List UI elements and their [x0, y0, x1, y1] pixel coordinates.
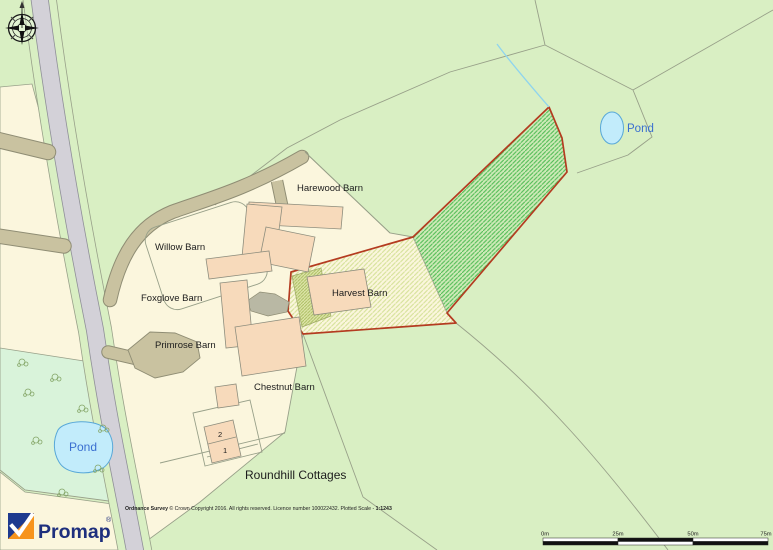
copyright-bold: Ordnance Survey	[125, 506, 168, 512]
label-pond-northeast: Pond	[627, 123, 654, 135]
label-cottage-1: 1	[223, 446, 227, 455]
scale-label-0m: 0m	[541, 532, 549, 538]
small-outbuilding	[215, 384, 239, 408]
chestnut-barn-building	[235, 317, 306, 376]
copyright-body: © Crown Copyright 2016. All rights reser…	[169, 505, 375, 512]
label-cottage-2: 2	[218, 430, 222, 439]
scale-segment	[618, 542, 693, 546]
label-pond-southwest: Pond	[69, 440, 97, 454]
plotted-scale-value: 1:1243	[376, 506, 392, 512]
scale-segment	[618, 538, 693, 542]
pond-northeast	[601, 112, 624, 144]
label-primrose-barn: Primrose Barn	[155, 340, 216, 351]
scale-label-75m: 75m	[760, 532, 771, 538]
scale-segment	[693, 542, 768, 546]
label-roundhill-cottages: Roundhill Cottages	[245, 468, 346, 482]
scale-segment	[543, 542, 618, 546]
label-harewood-barn: Harewood Barn	[297, 183, 363, 194]
label-harvest-barn: Harvest Barn	[332, 288, 387, 299]
label-willow-barn: Willow Barn	[155, 242, 205, 253]
promap-brand-text: Promap	[38, 521, 111, 543]
scale-segment	[543, 538, 618, 542]
label-chestnut-barn: Chestnut Barn	[254, 382, 315, 393]
promap-registered-mark: ®	[106, 516, 112, 524]
promap-map-view[interactable]: Harewood Barn Willow Barn Foxglove Barn …	[0, 0, 773, 550]
scale-label-25m: 25m	[612, 532, 623, 538]
copyright-text: Ordnance Survey © Crown Copyright 2016. …	[125, 505, 392, 512]
label-foxglove-barn: Foxglove Barn	[141, 293, 202, 304]
map-canvas[interactable]: Harewood Barn Willow Barn Foxglove Barn …	[0, 0, 773, 550]
scale-segment	[693, 538, 768, 542]
scale-label-50m: 50m	[687, 532, 698, 538]
